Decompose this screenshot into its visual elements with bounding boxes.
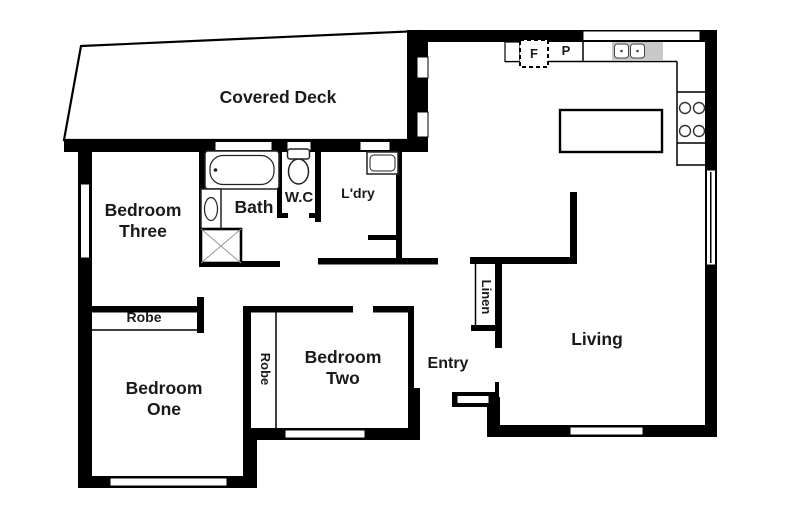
label-bedroom-one-line2: One — [147, 399, 181, 419]
floor-plan-canvas: Covered Deck Bedroom Three Bath W.C L'dr… — [0, 0, 790, 527]
entry-door-leaf — [457, 396, 489, 404]
wall-living-west — [570, 192, 577, 264]
label-living: Living — [571, 329, 623, 349]
label-pantry: P — [562, 43, 571, 58]
sink-drain-dot — [620, 50, 623, 53]
label-fridge: F — [530, 46, 538, 61]
wall-robe1-jamb — [197, 297, 204, 333]
window-kitchen-west-upper — [417, 57, 428, 78]
label-bath: Bath — [235, 197, 274, 217]
label-robe-bedroom-two: Robe — [258, 353, 273, 386]
wall-linen-east — [495, 257, 502, 348]
window-bedroom-three — [81, 184, 90, 258]
label-wc: W.C — [285, 189, 313, 206]
label-covered-deck: Covered Deck — [220, 87, 337, 107]
island-bench — [560, 110, 662, 152]
window-bedroom-two — [285, 430, 365, 438]
wall-wc-door-jamb-left — [277, 213, 288, 218]
wall-linen-top — [470, 257, 577, 264]
wet-area-fixtures — [201, 149, 398, 263]
window-kitchen-west-lower — [417, 112, 428, 137]
covered-deck-outline — [64, 31, 419, 140]
bathtub-tap — [214, 168, 218, 172]
sink-drain-dot — [636, 50, 639, 53]
wall-laundry-south — [368, 235, 400, 240]
label-bedroom-one-line1: Bedroom — [126, 378, 203, 398]
label-bedroom-three-line2: Three — [119, 221, 167, 241]
wall-bed2-north-b — [373, 306, 414, 313]
wall-entry-jamb — [495, 382, 499, 398]
window-laundry — [360, 142, 390, 151]
label-bedroom-three-line1: Bedroom — [105, 200, 182, 220]
floor-plan: Covered Deck Bedroom Three Bath W.C L'dr… — [0, 0, 790, 527]
wall-wc-east — [315, 143, 321, 222]
label-robe-bedroom-one: Robe — [127, 309, 162, 325]
kitchen-cabinet-end — [505, 42, 520, 62]
window-bedroom-one — [110, 478, 227, 486]
wall-hall-north — [318, 258, 438, 265]
label-entry: Entry — [428, 355, 469, 372]
label-linen: Linen — [479, 280, 494, 315]
label-bedroom-two-line2: Two — [326, 368, 360, 388]
label-bedroom-two-line1: Bedroom — [305, 347, 382, 367]
wall-bed2-east — [408, 306, 414, 394]
wall-bed2-west — [243, 306, 251, 428]
window-kitchen-north — [583, 31, 700, 41]
laundry-trough-inner — [370, 155, 395, 171]
window-bath — [215, 142, 272, 151]
wall-wc-door-jamb-right — [309, 213, 321, 218]
cooktop-icon — [680, 103, 705, 137]
wall-segment — [408, 388, 420, 440]
wall-bed2-north-a — [243, 306, 353, 313]
window-living-south — [570, 427, 643, 435]
toilet-cistern-icon — [288, 149, 310, 159]
toilet-bowl-icon — [289, 159, 309, 184]
label-laundry: L'dry — [341, 185, 375, 201]
vanity-basin-icon — [205, 198, 218, 221]
